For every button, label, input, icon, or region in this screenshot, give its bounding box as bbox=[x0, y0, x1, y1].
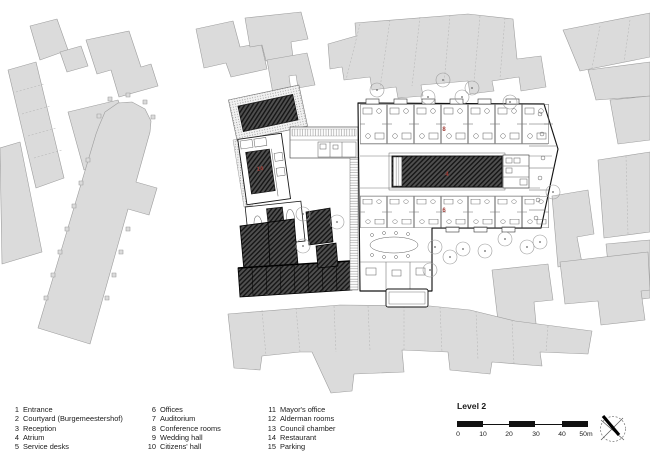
courtyard-skylights bbox=[306, 208, 338, 268]
legend-item: 7Auditorium bbox=[147, 414, 221, 423]
legend-item: 5Service desks bbox=[10, 442, 123, 451]
scale-tick: 40 bbox=[558, 431, 566, 438]
legend-item: 4Atrium bbox=[10, 433, 123, 442]
legend-item: 9Wedding hall bbox=[147, 433, 221, 442]
legend-item: 8Conference rooms bbox=[147, 424, 221, 433]
restaurant-wing: 14 bbox=[238, 133, 291, 204]
scale-tick: 0 bbox=[456, 431, 460, 438]
scale-tick: 20 bbox=[505, 431, 513, 438]
legend-column-2: 6Offices 7Auditorium 8Conference rooms 9… bbox=[147, 405, 221, 451]
north-arrow-icon bbox=[592, 407, 634, 451]
atrium: 4 bbox=[389, 153, 505, 190]
scale-bar-segment bbox=[509, 421, 535, 427]
legend-item: 12Alderman rooms bbox=[267, 414, 335, 423]
scale-tick: 30 bbox=[532, 431, 540, 438]
floor-plan-sheet: 14 bbox=[0, 0, 650, 459]
legend-item: 11Mayor's office bbox=[267, 405, 335, 414]
legend-column-1: 1Entrance 2Courtyard (Burgemeestershof) … bbox=[10, 405, 123, 451]
legend-item: 15Parking bbox=[267, 442, 335, 451]
scale-tick: 50m bbox=[579, 431, 592, 438]
site-plan: 14 bbox=[0, 0, 650, 400]
scale-bar-segment bbox=[457, 421, 483, 427]
scale-bar: 0 10 20 30 40 50m bbox=[457, 421, 588, 441]
legend-item: 13Council chamber bbox=[267, 424, 335, 433]
legend-item: 10Citizens' hall bbox=[147, 442, 221, 451]
legend-item: 2Courtyard (Burgemeestershof) bbox=[10, 414, 123, 423]
legend-item: 14Restaurant bbox=[267, 433, 335, 442]
office-slab-outline bbox=[358, 103, 558, 291]
link-corridor bbox=[290, 127, 358, 158]
legend-column-3: 11Mayor's office 12Alderman rooms 13Coun… bbox=[267, 405, 335, 451]
level-label: Level 2 bbox=[457, 401, 486, 411]
service-rooms bbox=[503, 155, 529, 188]
church-building bbox=[38, 93, 157, 344]
legend-item: 6Offices bbox=[147, 405, 221, 414]
legend-item: 3Reception bbox=[10, 424, 123, 433]
balcony-bay bbox=[386, 289, 428, 307]
legend-item: 1Entrance bbox=[10, 405, 123, 414]
scale-bar-segment bbox=[562, 421, 588, 427]
courtyard-gallery bbox=[350, 158, 358, 290]
scale-tick: 10 bbox=[479, 431, 487, 438]
